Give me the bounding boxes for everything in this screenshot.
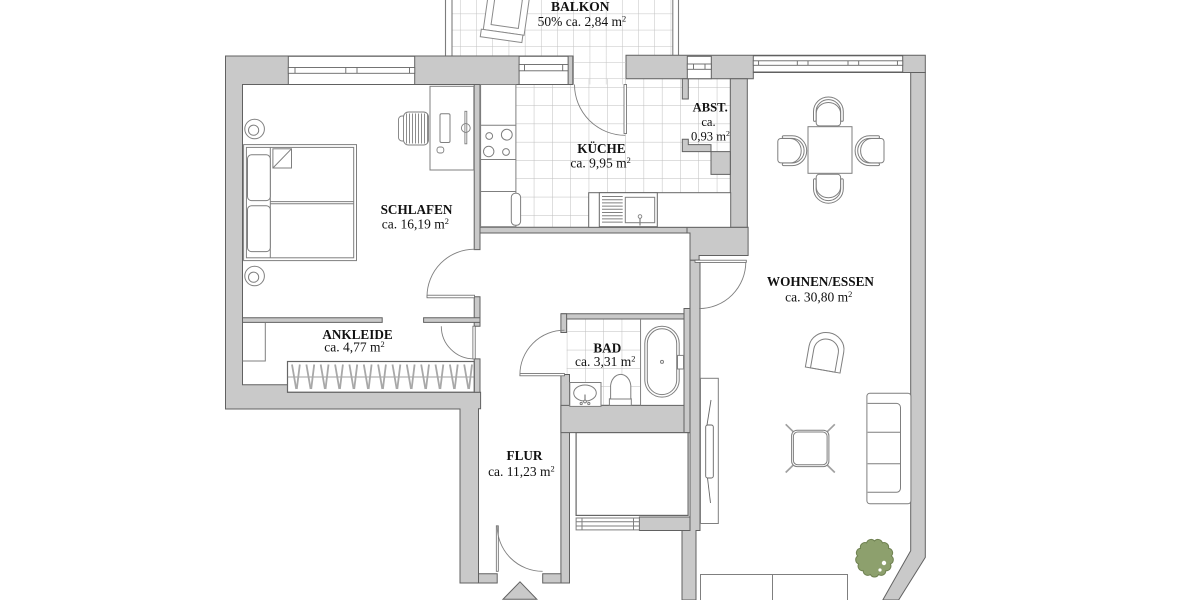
svg-text:0,93 m2: 0,93 m2 [691, 129, 730, 143]
svg-text:SCHLAFEN: SCHLAFEN [381, 202, 453, 217]
svg-text:ABST.: ABST. [693, 100, 728, 114]
svg-text:ca. 11,23 m2: ca. 11,23 m2 [488, 464, 555, 479]
svg-text:WOHNEN/ESSEN: WOHNEN/ESSEN [767, 274, 874, 289]
svg-text:FLUR: FLUR [507, 448, 543, 463]
svg-text:ca.: ca. [701, 115, 715, 129]
svg-text:ca. 4,77 m2: ca. 4,77 m2 [324, 340, 384, 355]
svg-text:KÜCHE: KÜCHE [577, 141, 626, 156]
svg-text:ca. 3,31 m2: ca. 3,31 m2 [575, 354, 635, 369]
svg-text:ca. 9,95 m2: ca. 9,95 m2 [570, 155, 630, 170]
svg-text:BALKON: BALKON [551, 0, 610, 14]
svg-text:50% ca. 2,84 m2: 50% ca. 2,84 m2 [538, 14, 627, 29]
svg-text:ca. 30,80 m2: ca. 30,80 m2 [785, 289, 852, 304]
svg-text:ca. 16,19 m2: ca. 16,19 m2 [382, 216, 449, 231]
